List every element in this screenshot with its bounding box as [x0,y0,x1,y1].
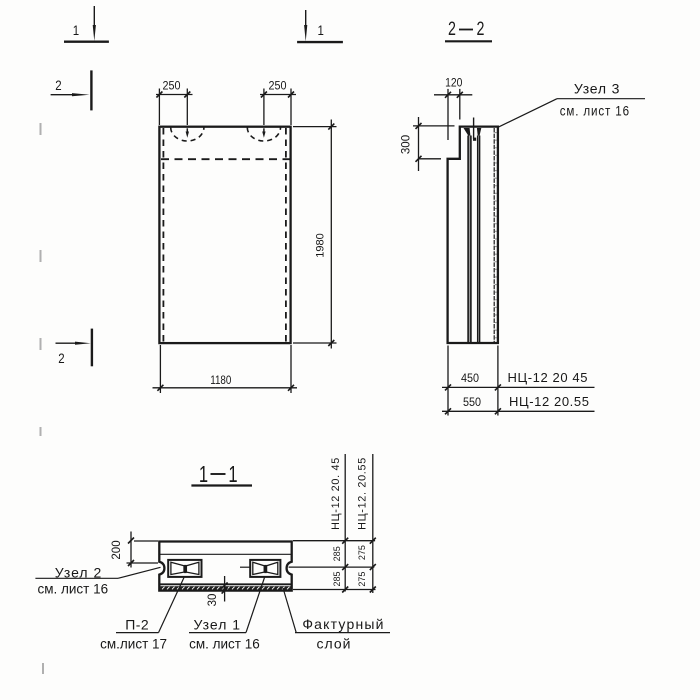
svg-text:1: 1 [199,462,208,487]
svg-text:450: 450 [461,373,479,386]
svg-text:П-2: П-2 [125,617,149,633]
svg-text:см. лист 16: см. лист 16 [560,104,630,119]
svg-text:300: 300 [401,135,413,154]
svg-text:2: 2 [58,350,64,366]
svg-text:1: 1 [73,22,79,38]
svg-text:1: 1 [318,22,324,38]
svg-text:1: 1 [228,462,237,487]
svg-text:НЦ-12 20.55: НЦ-12 20.55 [509,394,590,409]
svg-text:2: 2 [448,18,456,39]
svg-text:Фактурный: Фактурный [302,616,384,632]
svg-text:2: 2 [477,18,485,39]
svg-text:НЦ-12 20 45: НЦ-12 20 45 [508,370,589,385]
svg-text:30: 30 [207,594,219,607]
svg-text:см. лист 16: см. лист 16 [37,582,108,597]
svg-text:275: 275 [357,545,367,560]
svg-text:250: 250 [268,80,286,93]
svg-text:слой: слой [317,636,352,652]
svg-text:Узел 3: Узел 3 [574,81,620,97]
svg-text:см. лист 16: см. лист 16 [189,637,260,652]
svg-text:НЦ-12 20. 45: НЦ-12 20. 45 [330,457,342,530]
svg-text:2: 2 [55,77,61,93]
svg-text:275: 275 [357,572,367,587]
svg-text:550: 550 [463,397,481,410]
svg-text:Узел 1: Узел 1 [194,617,242,633]
svg-text:НЦ-12. 20.55: НЦ-12. 20.55 [357,457,369,530]
svg-text:1180: 1180 [210,374,231,387]
svg-text:285: 285 [332,571,342,586]
svg-text:285: 285 [332,546,342,561]
svg-text:см.лист 17: см.лист 17 [100,637,167,652]
svg-text:200: 200 [111,540,123,559]
svg-text:120: 120 [445,77,462,90]
svg-text:250: 250 [162,80,180,93]
svg-text:1980: 1980 [315,233,327,257]
